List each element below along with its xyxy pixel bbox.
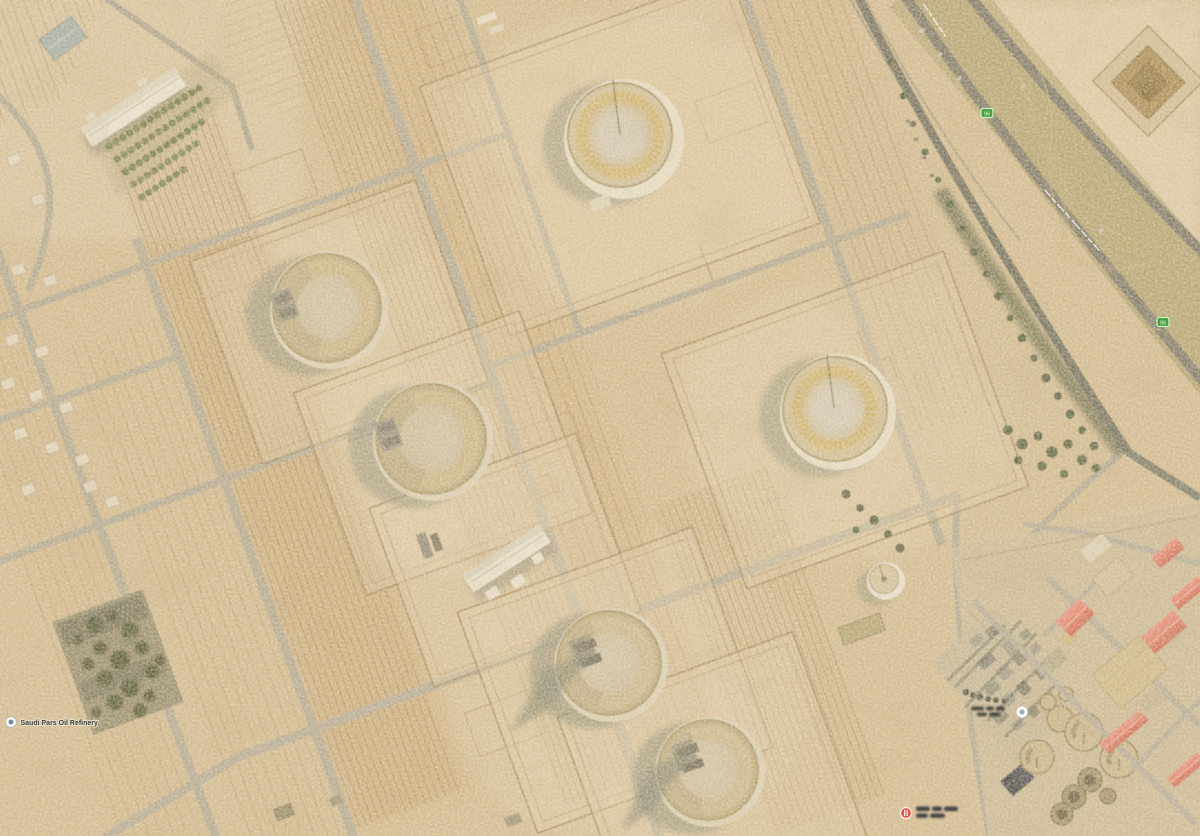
svg-text:96: 96 <box>1160 321 1166 327</box>
svg-text:96: 96 <box>984 112 990 118</box>
svg-text:Saudi Pars Oil Refinery: Saudi Pars Oil Refinery <box>21 720 99 727</box>
